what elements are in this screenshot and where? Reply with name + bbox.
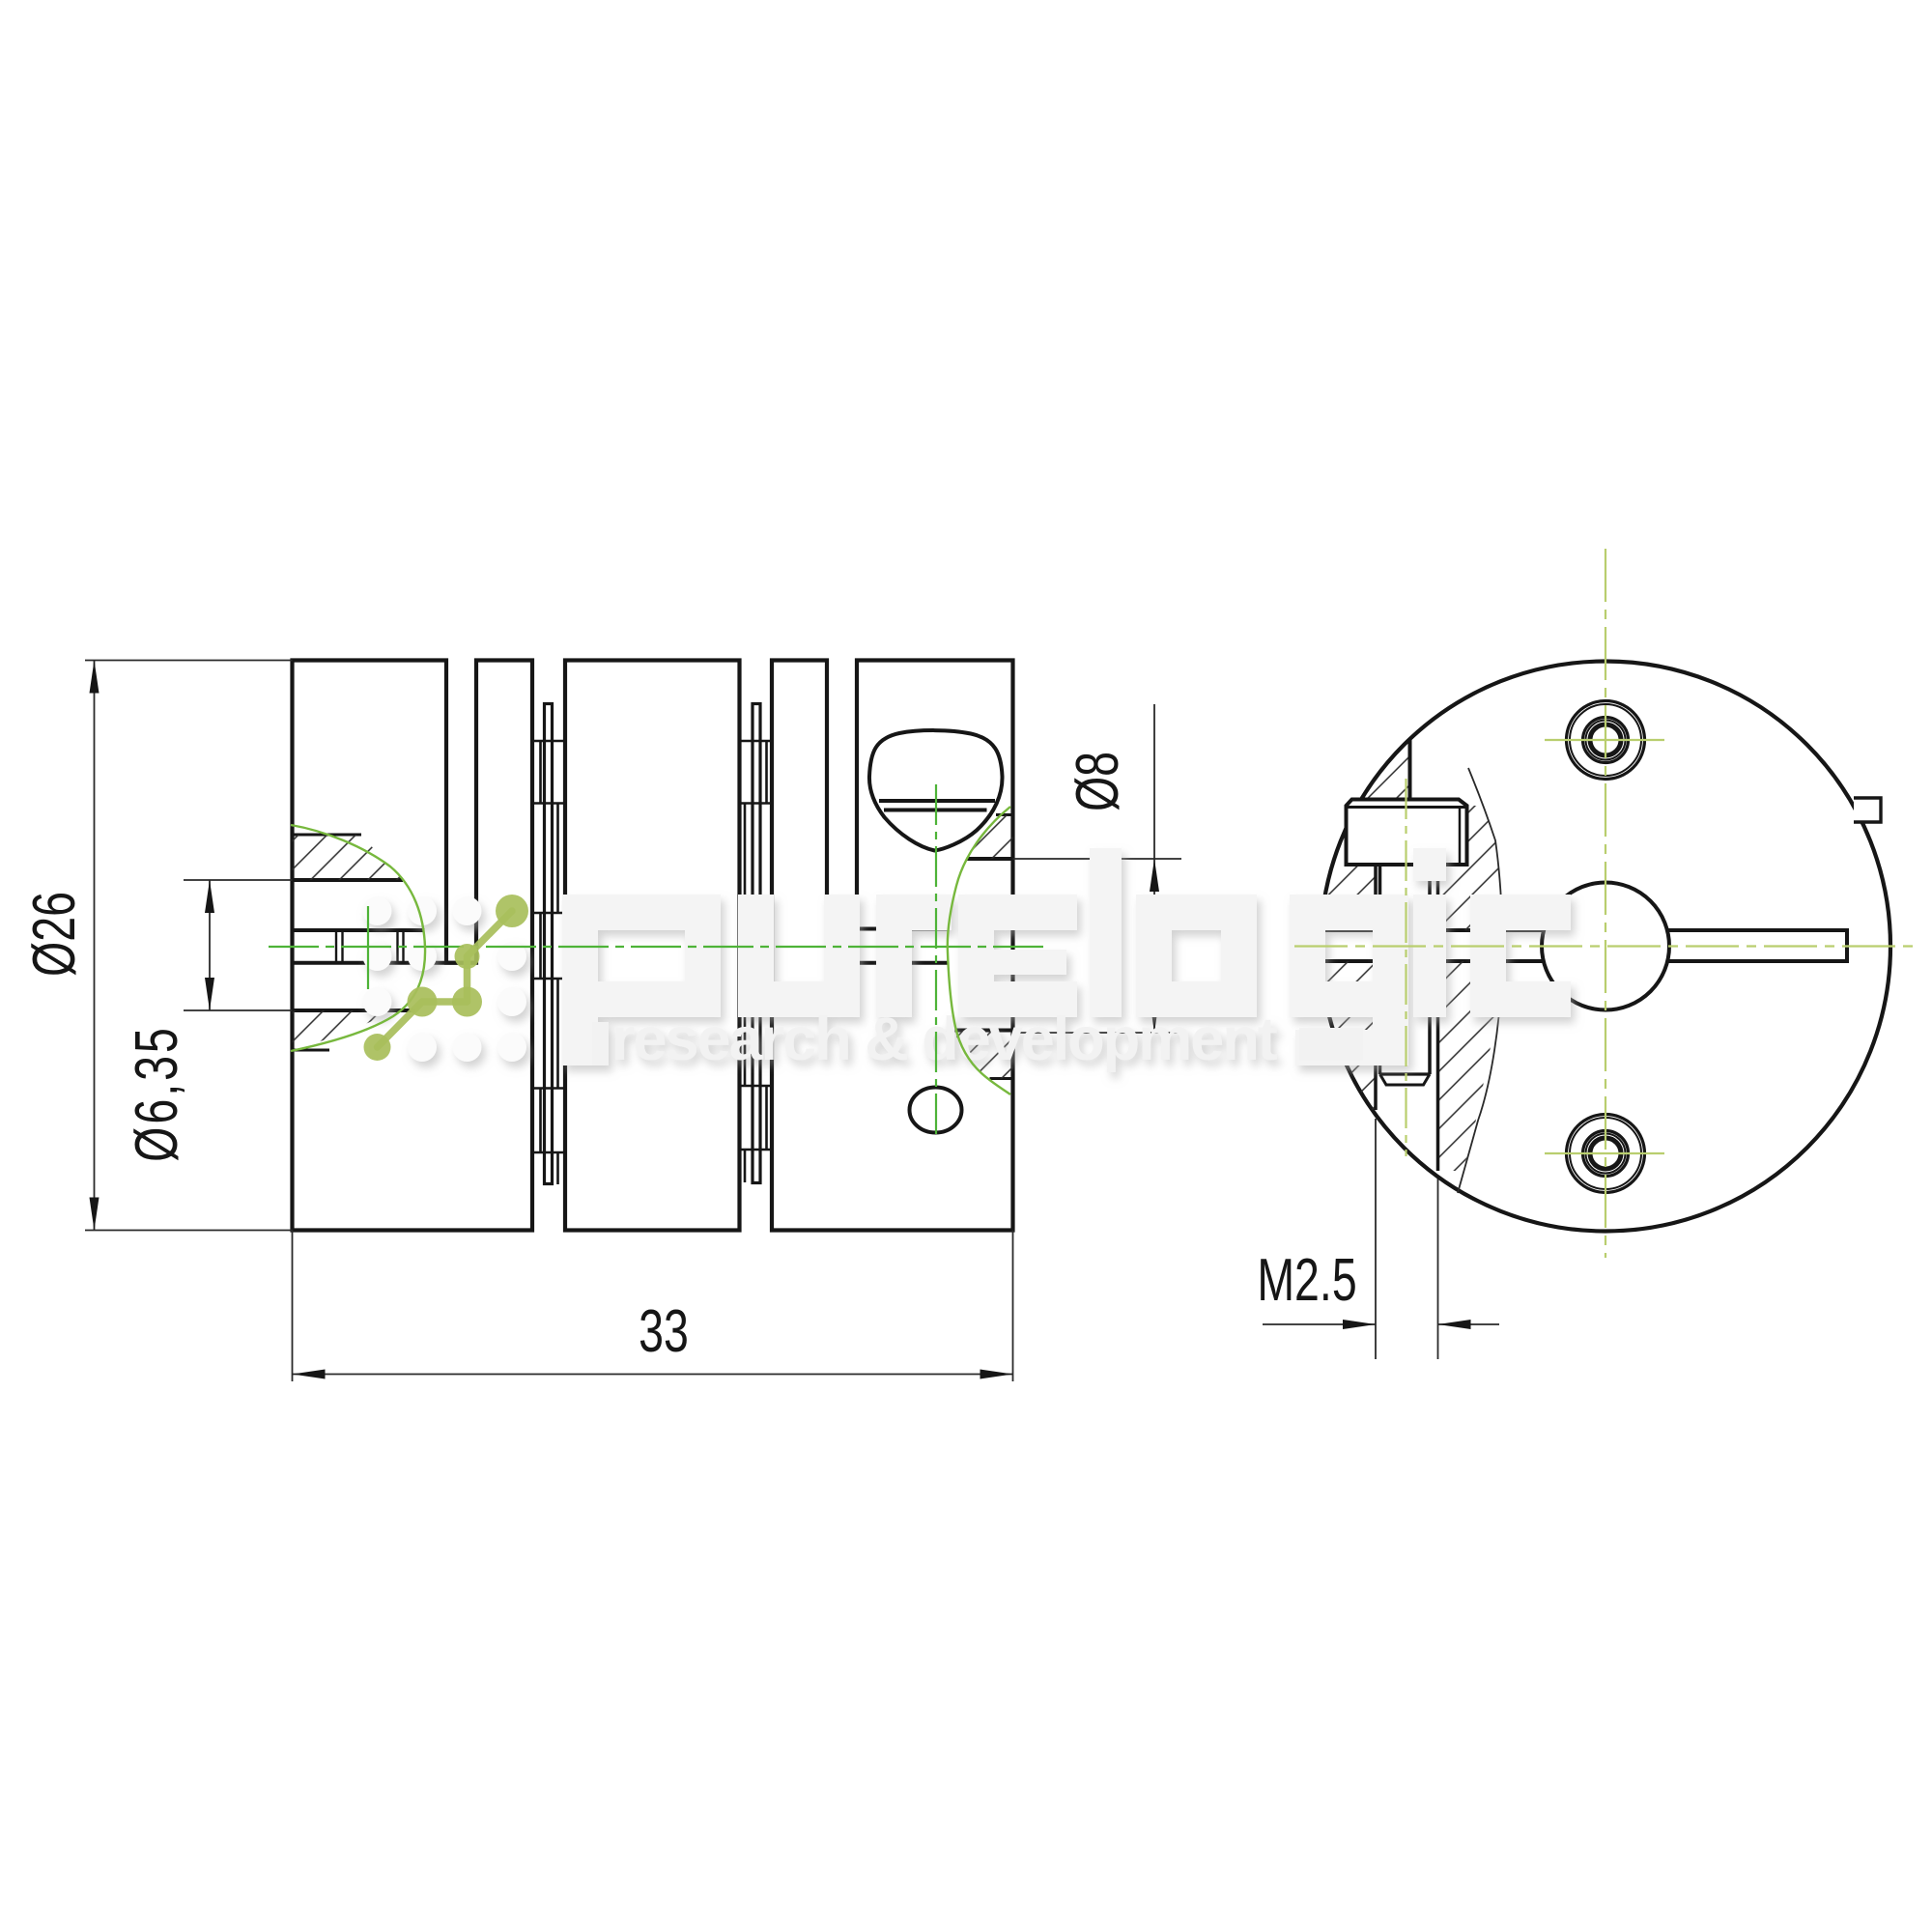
svg-text:Ø26: Ø26 (19, 892, 87, 977)
svg-text:Ø8: Ø8 (1063, 752, 1130, 811)
svg-text:M2.5: M2.5 (1257, 1245, 1356, 1313)
svg-text:Ø6,35: Ø6,35 (122, 1025, 189, 1162)
svg-text:33: 33 (639, 1296, 689, 1364)
svg-text:research & development: research & development (611, 1006, 1278, 1073)
